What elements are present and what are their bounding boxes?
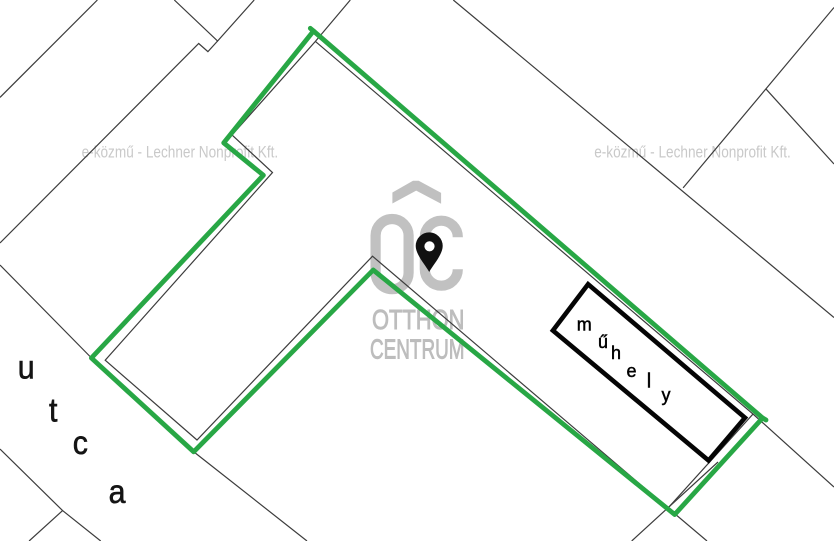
svg-text:CENTRUM: CENTRUM — [370, 333, 465, 364]
svg-text:e: e — [627, 361, 637, 381]
svg-text:h: h — [611, 343, 621, 363]
svg-text:u: u — [18, 348, 35, 385]
svg-text:c: c — [73, 424, 88, 461]
svg-text:ű: ű — [598, 332, 608, 352]
svg-text:a: a — [109, 473, 126, 510]
svg-text:m: m — [577, 315, 592, 335]
svg-text:y: y — [662, 385, 671, 405]
svg-text:l: l — [647, 371, 651, 393]
svg-text:t: t — [49, 391, 58, 428]
svg-text:e-közmű - Lechner Nonprofit Kf: e-közmű - Lechner Nonprofit Kft. — [594, 144, 791, 162]
svg-text:e-közmű - Lechner Nonprofit Kf: e-közmű - Lechner Nonprofit Kft. — [82, 144, 279, 162]
